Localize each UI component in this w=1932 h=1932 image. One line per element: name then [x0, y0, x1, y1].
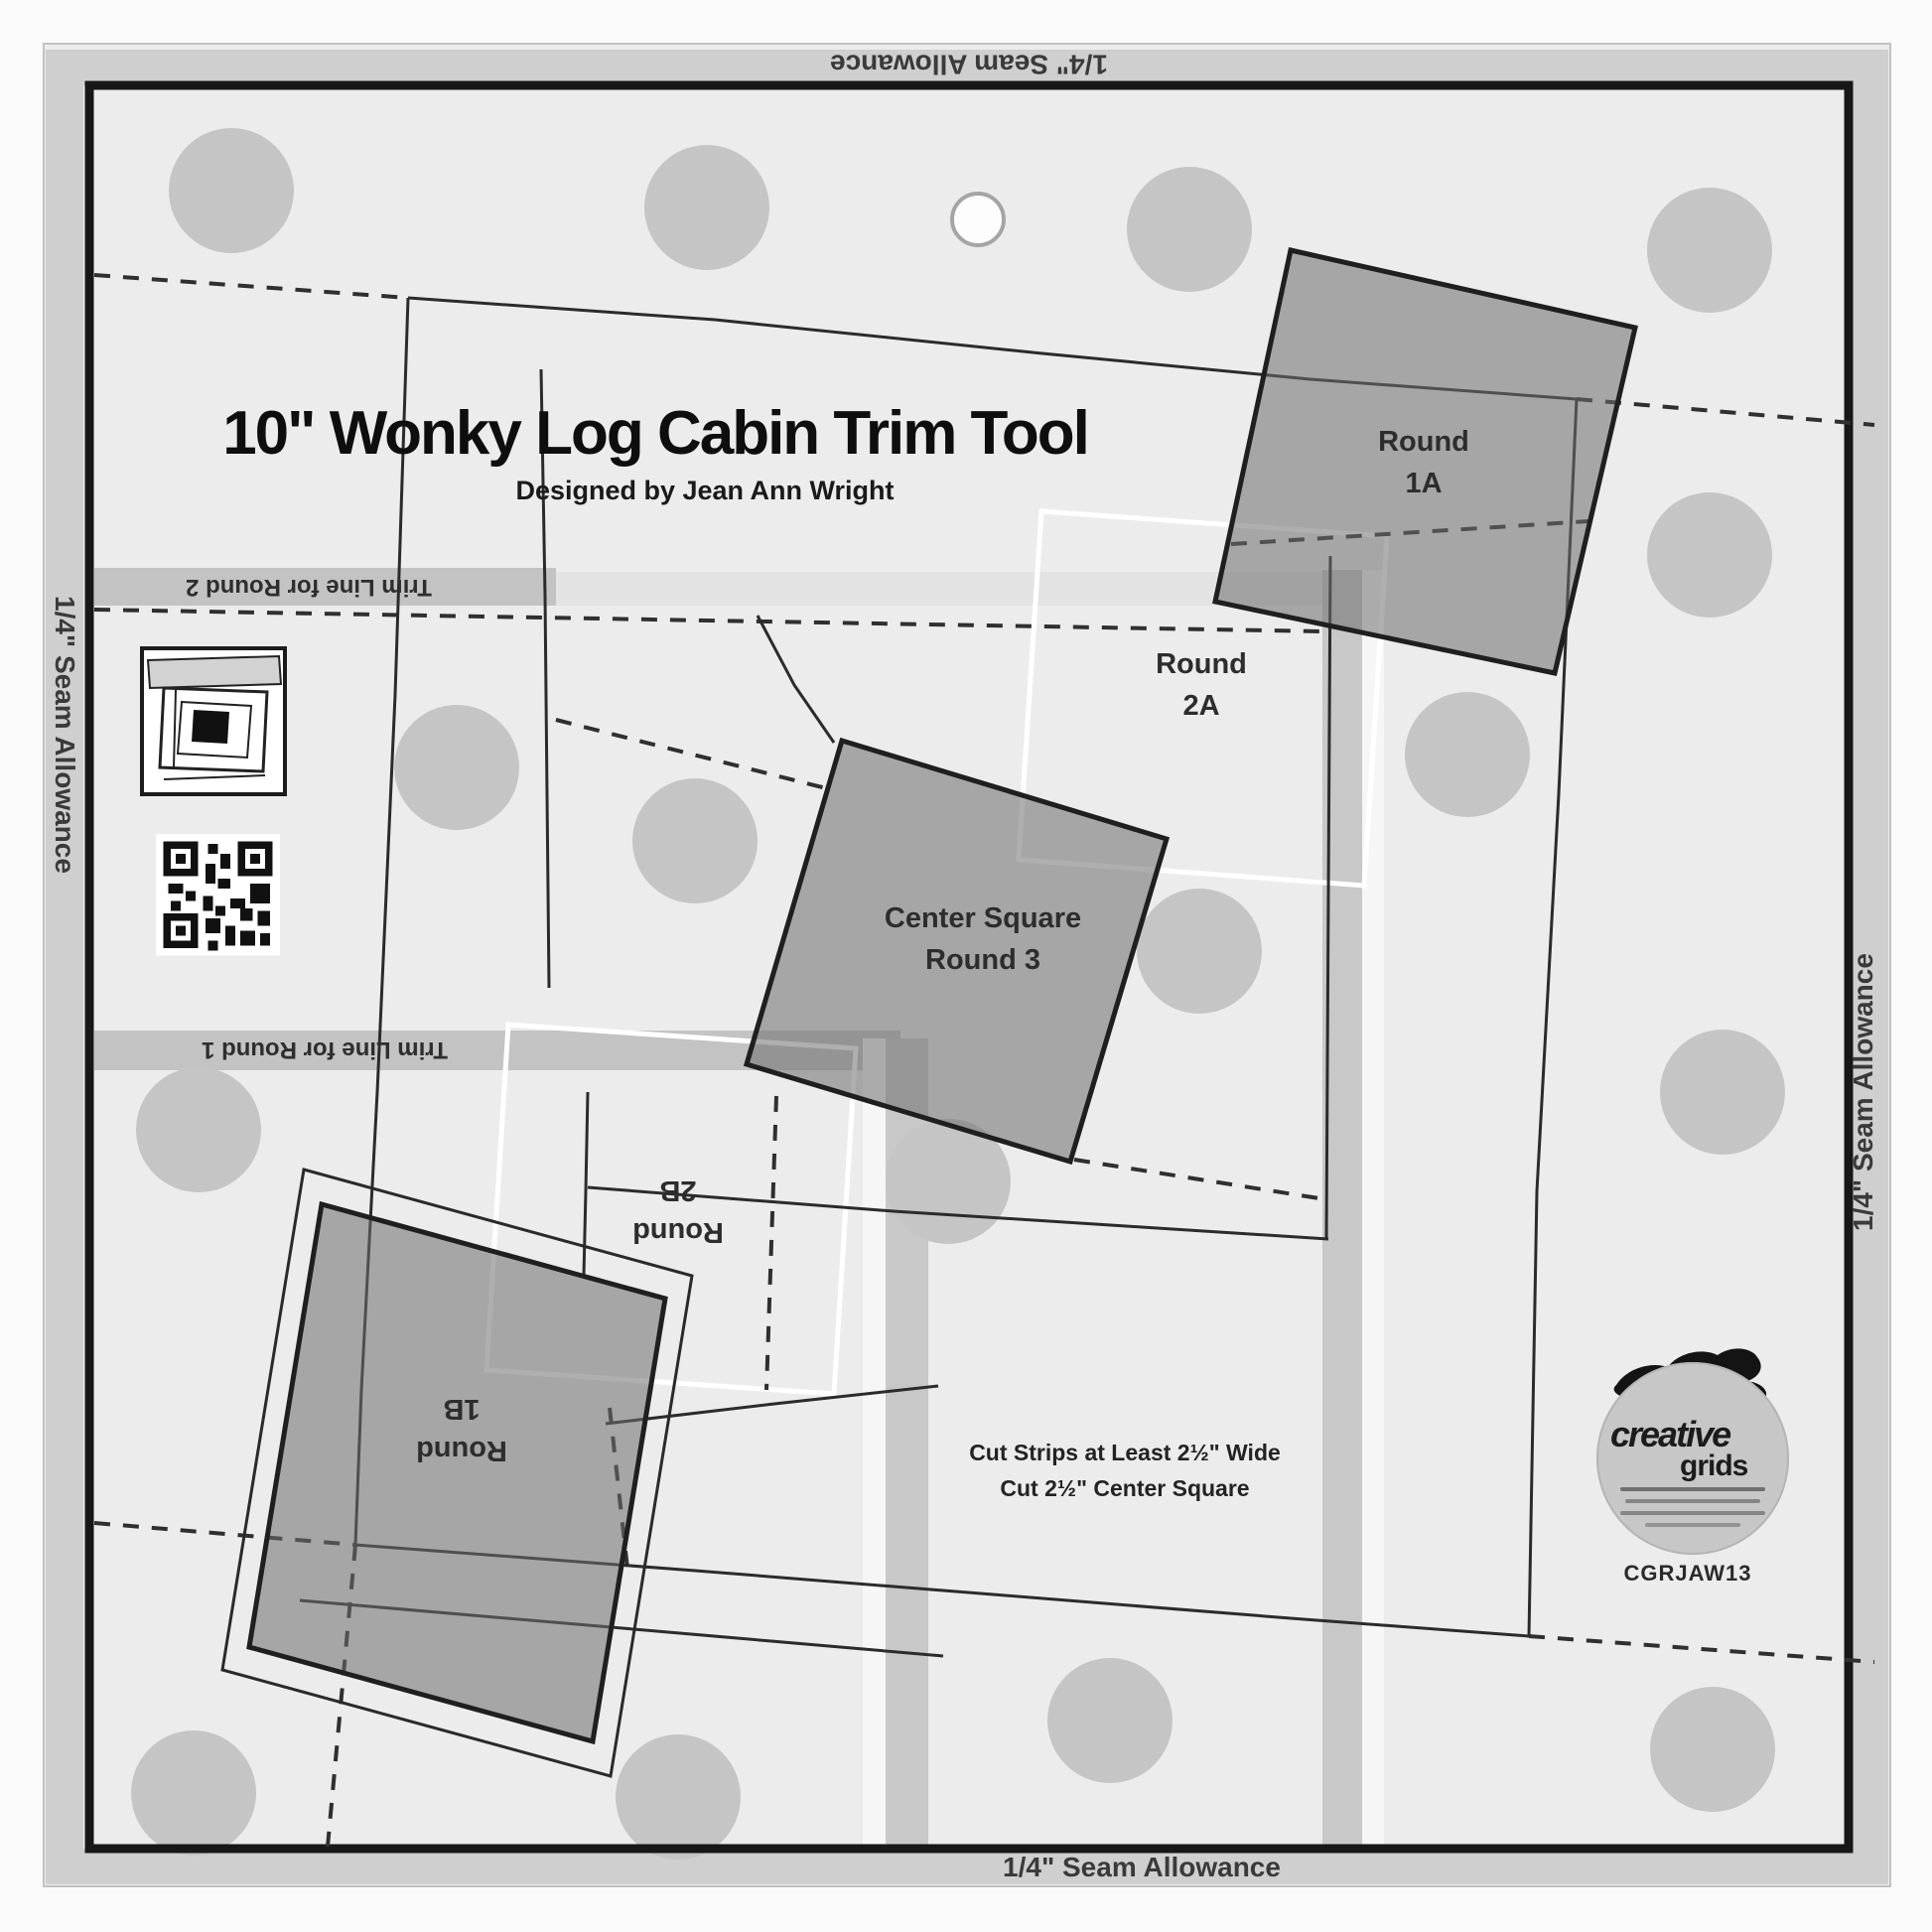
trim-line-round-2-label: Trim Line for Round 2: [110, 572, 507, 601]
log-cabin-block-icon: [142, 648, 285, 794]
round-1b-patch: [249, 1204, 665, 1741]
seam-allowance-label-right: 1/4" Seam Allowance: [1847, 774, 1888, 1231]
creative-grids-logo: creative grids: [1596, 1362, 1789, 1555]
qr-code: [156, 834, 280, 956]
round-2b-label: Round 2B: [529, 1170, 827, 1253]
product-photo-wonky-log-cabin-trim-tool: 10" Wonky Log Cabin Trim Tool Designed b…: [0, 0, 1932, 1932]
logo-fine-print-line: [1620, 1511, 1765, 1515]
logo-fine-print-line: [1625, 1499, 1760, 1503]
center-square-label: Center Square Round 3: [834, 897, 1132, 981]
logo-fine-print-line: [1645, 1523, 1740, 1527]
seam-allowance-label-left: 1/4" Seam Allowance: [40, 596, 81, 1033]
cutting-instructions: Cut Strips at Least 2½" Wide Cut 2½" Cen…: [926, 1436, 1323, 1506]
seam-allowance-label-top: 1/4" Seam Allowance: [671, 48, 1267, 81]
round-2a-label: Round 2A: [1052, 643, 1350, 727]
product-code: CGRJAW13: [1618, 1561, 1757, 1587]
product-designer: Designed by Jean Ann Wright: [258, 475, 1152, 506]
trim-line-round-1-label: Trim Line for Round 1: [126, 1035, 523, 1063]
logo-brand-word-2: grids: [1680, 1449, 1747, 1483]
round-1a-label: Round 1A: [1275, 421, 1573, 504]
logo-divider: [1620, 1487, 1765, 1491]
seam-allowance-label-bottom: 1/4" Seam Allowance: [844, 1851, 1440, 1884]
product-title: 10" Wonky Log Cabin Trim Tool: [159, 397, 1152, 471]
hanging-hole: [952, 194, 1004, 245]
round-1b-label: Round 1B: [313, 1388, 611, 1471]
